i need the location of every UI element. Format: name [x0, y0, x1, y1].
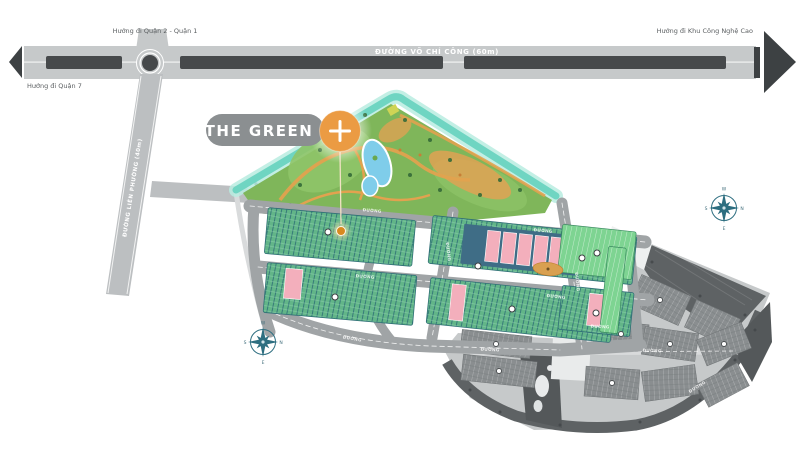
pond	[534, 400, 543, 412]
direction-label-east: Hướng đi Khu Công Nghệ Cao	[657, 27, 753, 35]
street-label: ĐƯỜNG	[590, 324, 610, 330]
lot-marker	[668, 342, 673, 347]
highway-median	[180, 56, 443, 69]
lot-marker	[579, 255, 585, 261]
lot-marker	[658, 298, 663, 303]
compass-letter-left: S	[244, 340, 247, 346]
east-arrow-icon	[764, 31, 796, 93]
west-arrow-icon	[9, 46, 22, 78]
lot-marker	[332, 294, 338, 300]
direction-label-west: Hướng đi Quận 7	[27, 82, 82, 90]
lot-marker	[610, 381, 615, 386]
compass-letter-right: N	[279, 340, 282, 346]
lot-marker	[619, 332, 624, 337]
highway-median	[464, 56, 726, 69]
lot-marker	[494, 342, 499, 347]
direction-label-north: Hướng đi Quận 2 - Quận 1	[113, 27, 198, 35]
lot-marker	[509, 306, 515, 312]
lot-marker	[594, 250, 600, 256]
lot-marker	[593, 310, 599, 316]
street-label: ĐƯỜNG	[480, 347, 500, 353]
highway-vo-chi-cong	[9, 29, 796, 93]
east-arrow-bar	[754, 47, 760, 78]
location-dot	[337, 227, 346, 236]
compass-rose-ne: W N E S	[705, 187, 744, 233]
main-road-label: ĐƯỜNG VÕ CHÍ CÔNG (60m)	[375, 47, 499, 56]
lot-marker	[722, 342, 727, 347]
compass-letter-left: S	[705, 206, 708, 212]
lot-marker	[497, 369, 502, 374]
roundabout-center	[142, 55, 158, 71]
compass-letter-right: N	[740, 206, 743, 212]
residential-blocks	[263, 208, 637, 343]
pond	[535, 375, 549, 397]
master-plan-map: ĐƯỜNG ĐƯỜNG ĐƯỜNG ĐƯỜNG ĐƯỜNG ĐƯỜNG ĐƯỜN…	[0, 0, 800, 458]
site-plan-canvas: ĐƯỜNG ĐƯỜNG ĐƯỜNG ĐƯỜNG ĐƯỜNG ĐƯỜNG ĐƯỜN…	[0, 0, 800, 458]
pool-island	[373, 156, 378, 161]
street-label: ĐƯỜNG	[642, 348, 662, 354]
project-title: THE GREEN	[205, 122, 314, 140]
compass-letter-top: W	[261, 321, 266, 327]
playground-center	[547, 268, 550, 271]
plus-marker-button[interactable]	[320, 111, 361, 152]
highway-median	[46, 56, 122, 69]
pink-building	[283, 268, 303, 299]
compass-letter-top: W	[722, 187, 727, 193]
lot-marker	[475, 263, 481, 269]
lagoon-pool	[362, 176, 378, 196]
compass-letter-bottom: E	[262, 360, 265, 366]
compass-letter-bottom: E	[723, 226, 726, 232]
